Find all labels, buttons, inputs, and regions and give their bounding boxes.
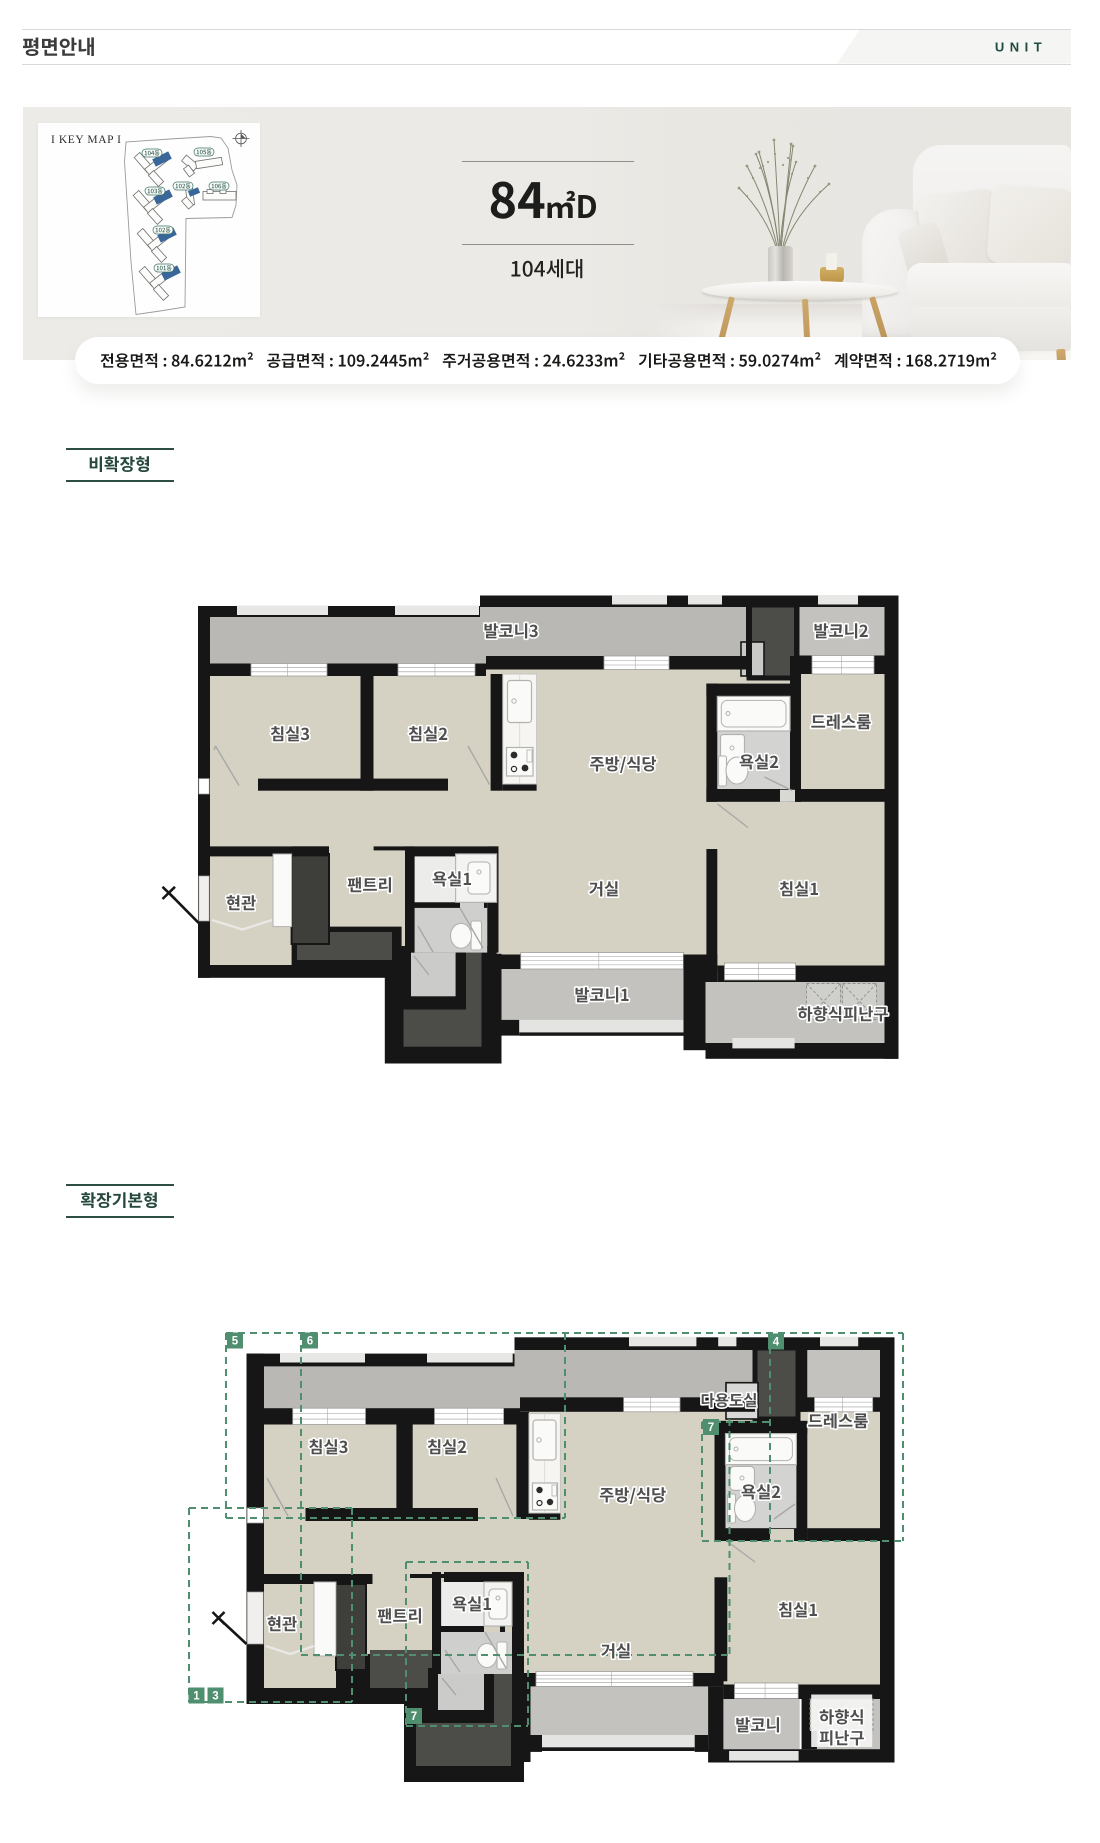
svg-text:7: 7 xyxy=(708,1422,714,1434)
svg-text:I KEY MAP I: I KEY MAP I xyxy=(51,134,122,146)
svg-text:5: 5 xyxy=(232,1336,239,1348)
svg-text:6: 6 xyxy=(307,1336,313,1348)
svg-text:1: 1 xyxy=(193,1691,200,1703)
svg-text:3: 3 xyxy=(212,1691,218,1703)
svg-text:4: 4 xyxy=(773,1337,780,1349)
svg-text:7: 7 xyxy=(411,1711,417,1723)
svg-text:UNIT: UNIT xyxy=(995,40,1047,55)
